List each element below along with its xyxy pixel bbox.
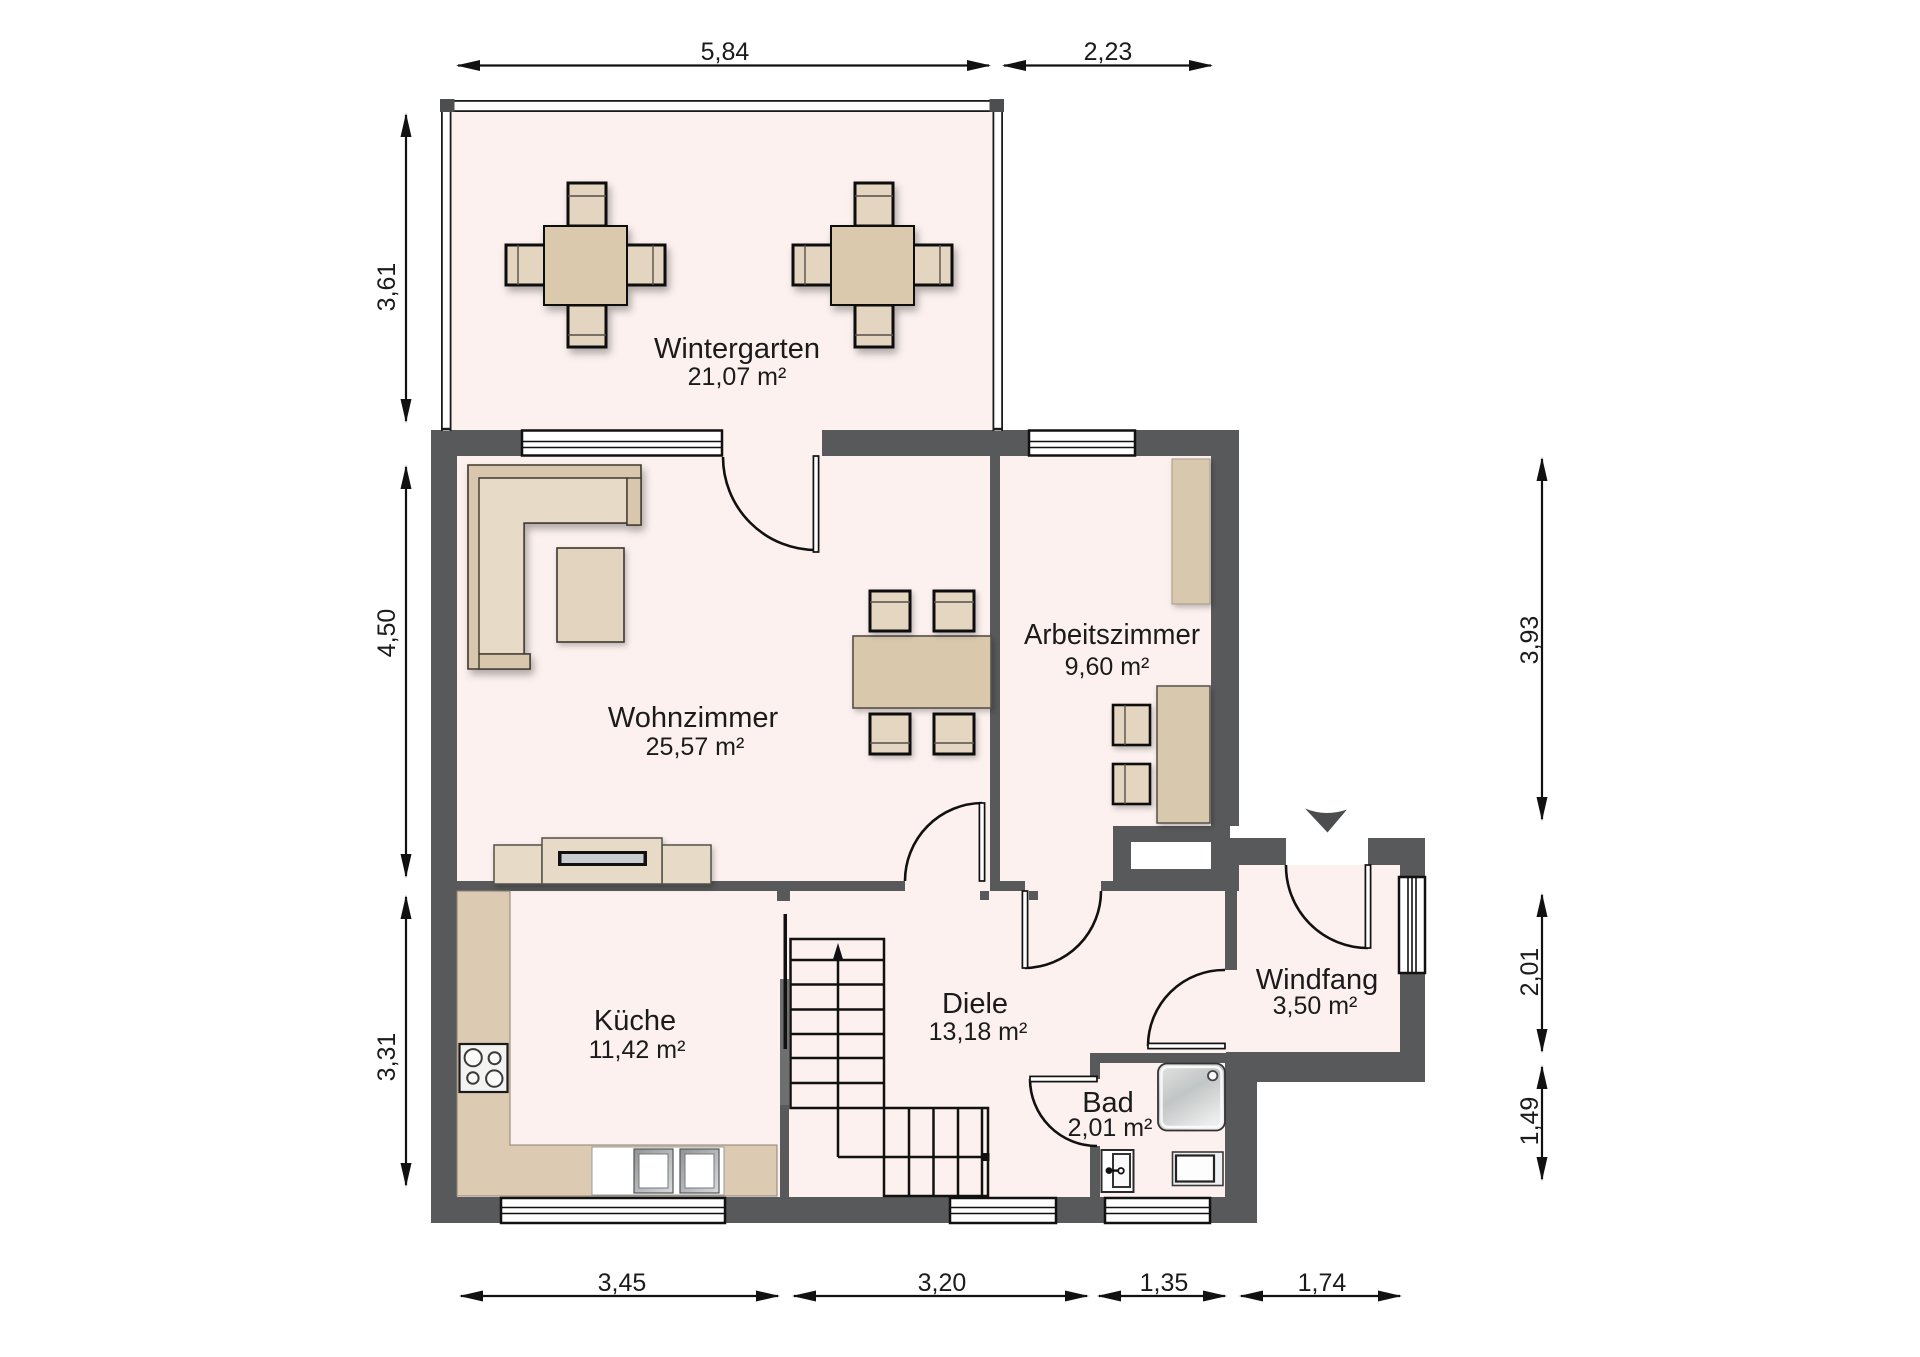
svg-text:13,18 m²: 13,18 m²	[929, 1018, 1028, 1046]
svg-text:3,61: 3,61	[373, 263, 401, 312]
svg-text:21,07 m²: 21,07 m²	[688, 363, 787, 391]
svg-text:2,01 m²: 2,01 m²	[1068, 1114, 1153, 1142]
svg-text:1,49: 1,49	[1516, 1097, 1544, 1146]
svg-text:4,50: 4,50	[373, 609, 401, 658]
svg-text:3,93: 3,93	[1516, 616, 1544, 665]
svg-text:1,35: 1,35	[1140, 1269, 1189, 1297]
svg-text:2,23: 2,23	[1084, 38, 1133, 66]
svg-text:Wohnzimmer: Wohnzimmer	[608, 702, 779, 734]
svg-text:3,31: 3,31	[373, 1033, 401, 1082]
svg-text:25,57 m²: 25,57 m²	[646, 733, 745, 761]
svg-text:1,74: 1,74	[1298, 1269, 1347, 1297]
svg-text:9,60 m²: 9,60 m²	[1065, 653, 1150, 681]
svg-text:Arbeitszimmer: Arbeitszimmer	[1024, 619, 1200, 651]
svg-text:5,84: 5,84	[701, 38, 750, 66]
svg-text:3,20: 3,20	[918, 1269, 967, 1297]
svg-text:3,50 m²: 3,50 m²	[1273, 992, 1358, 1020]
svg-text:3,45: 3,45	[598, 1269, 647, 1297]
svg-text:11,42 m²: 11,42 m²	[589, 1036, 686, 1064]
svg-text:Küche: Küche	[594, 1005, 676, 1037]
svg-text:2,01: 2,01	[1516, 948, 1544, 997]
svg-text:Diele: Diele	[942, 988, 1008, 1020]
svg-text:Wintergarten: Wintergarten	[654, 333, 820, 365]
